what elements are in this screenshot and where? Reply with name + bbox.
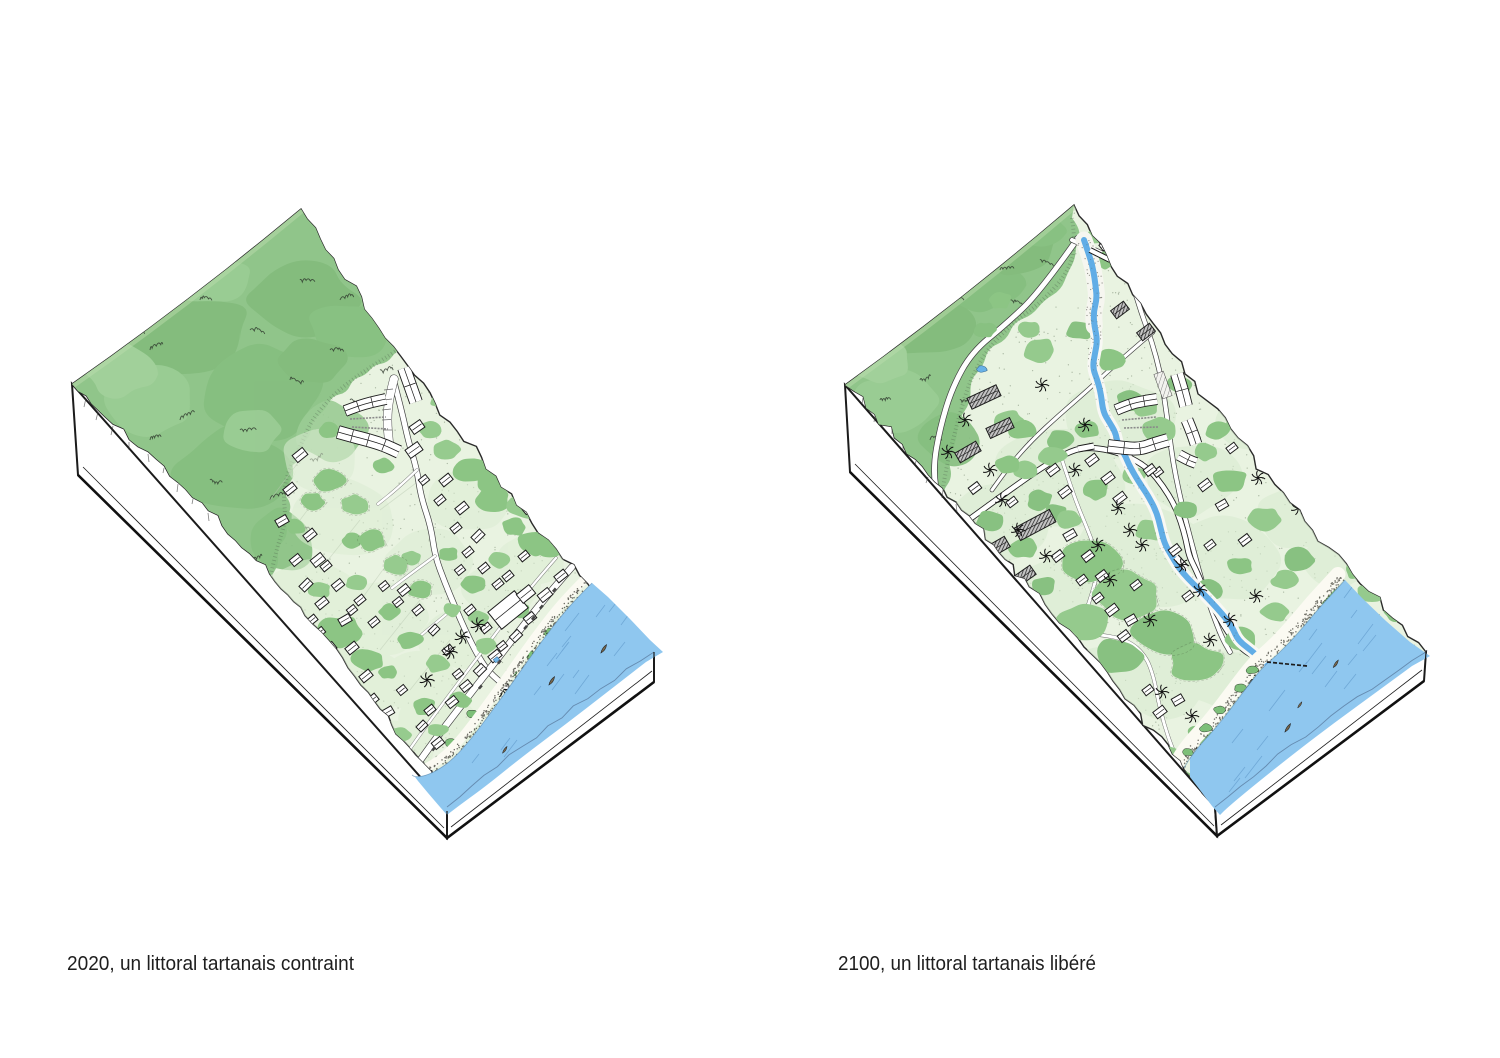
svg-text:2100, un littoral tartanais li: 2100, un littoral tartanais libéré	[838, 953, 1096, 975]
svg-text:2020, un littoral tartanais co: 2020, un littoral tartanais contraint	[67, 953, 354, 975]
